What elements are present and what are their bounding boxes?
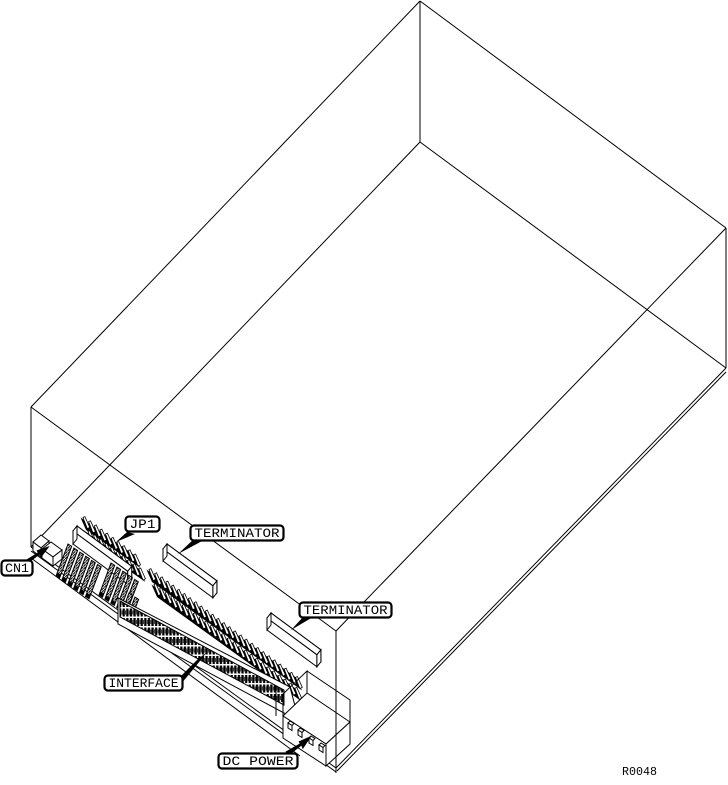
svg-text:R0048: R0048 xyxy=(622,765,657,779)
svg-text:CN1: CN1 xyxy=(5,561,29,576)
svg-text:TERMINATOR: TERMINATOR xyxy=(195,526,280,541)
svg-text:INTERFACE: INTERFACE xyxy=(109,676,179,691)
svg-text:JP1: JP1 xyxy=(130,517,156,532)
svg-text:TERMINATOR: TERMINATOR xyxy=(304,603,388,618)
svg-text:DC POWER: DC POWER xyxy=(223,754,294,769)
